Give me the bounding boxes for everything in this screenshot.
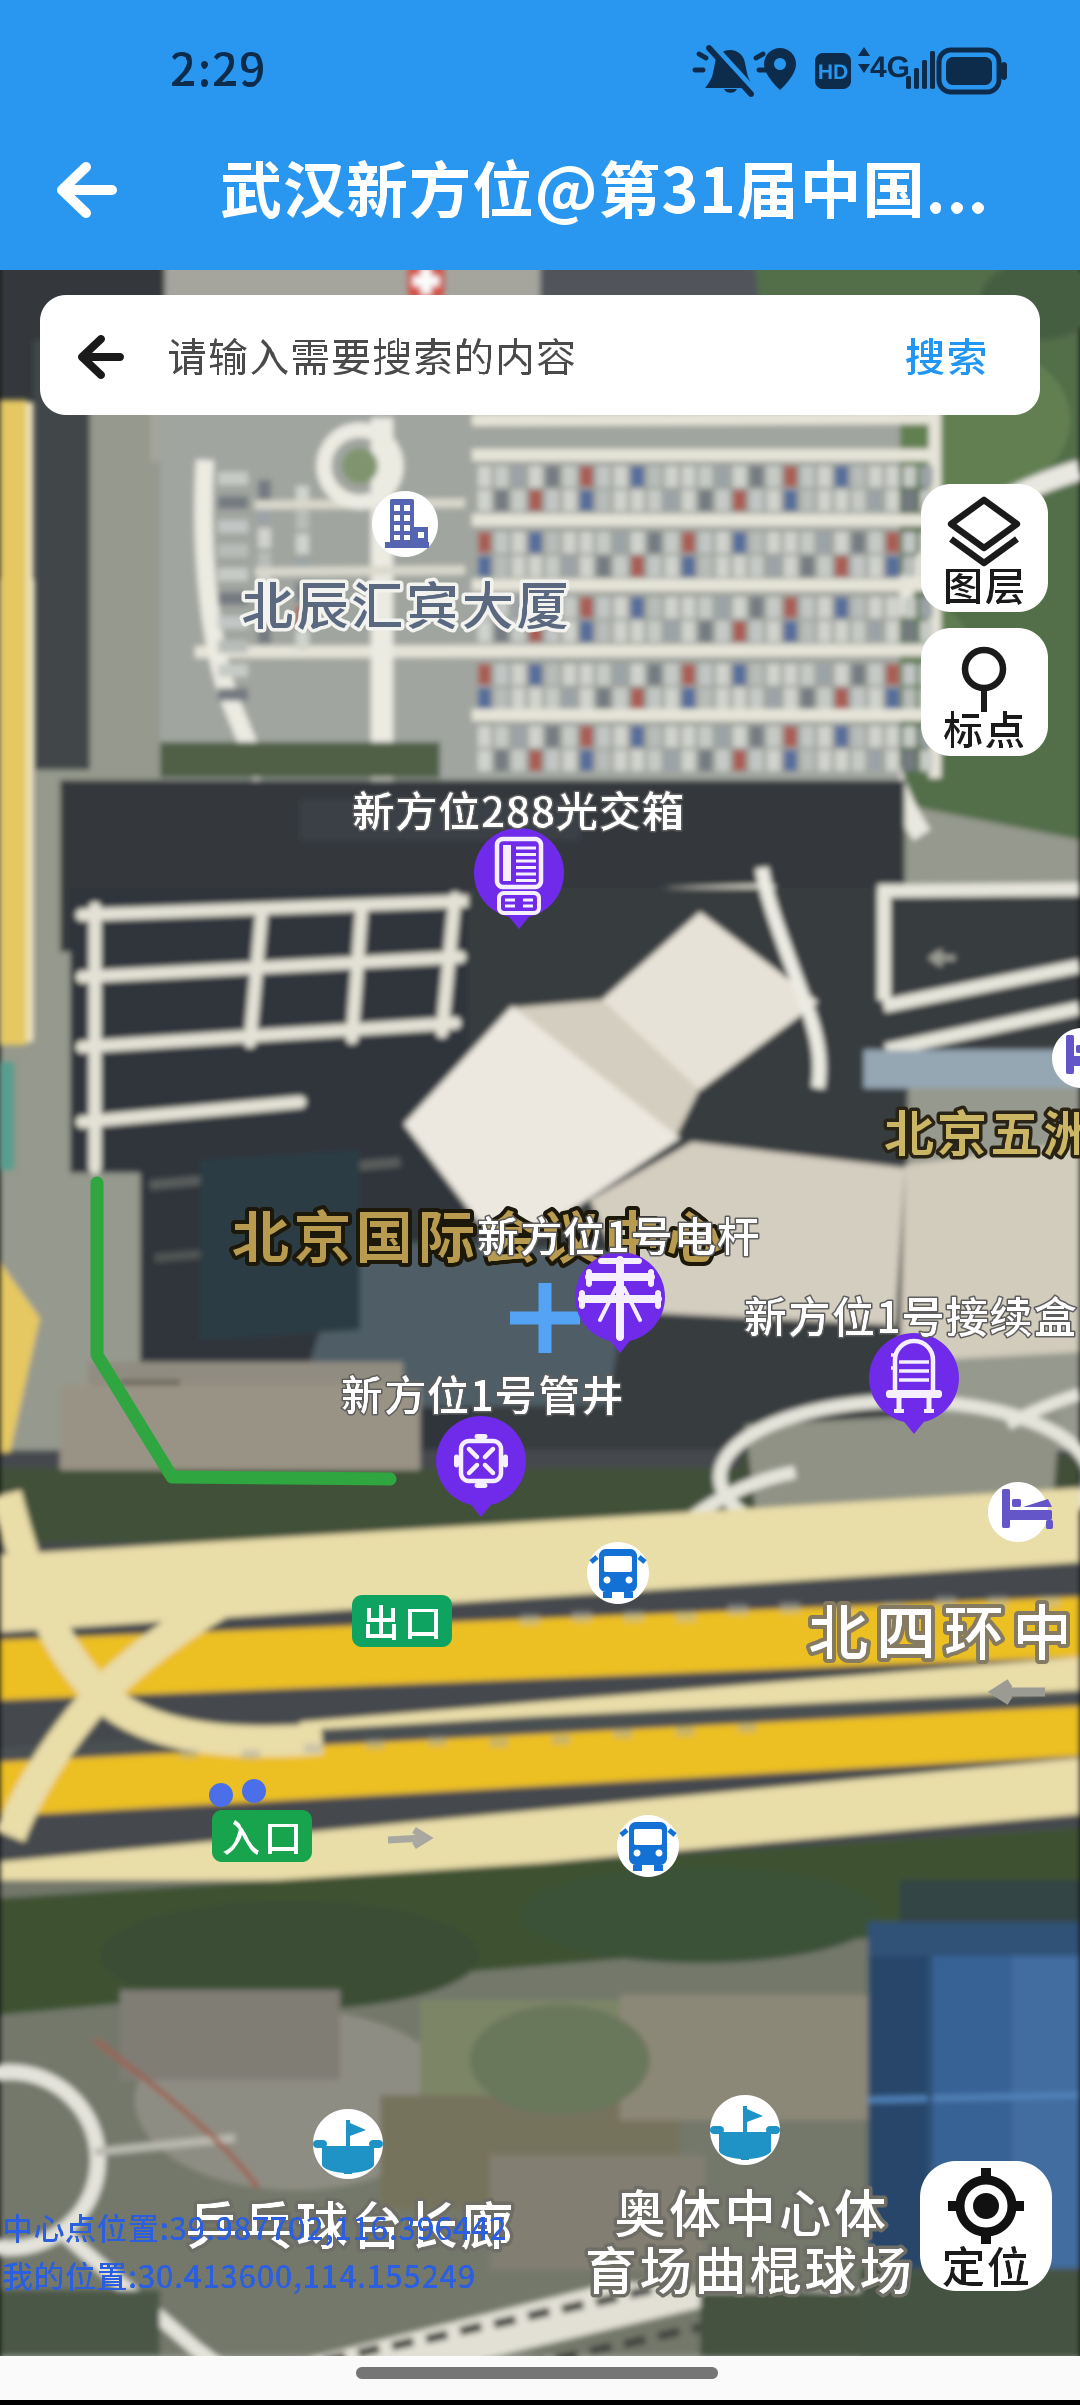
svg-text:HD: HD [818, 61, 848, 84]
svg-text:4G: 4G [870, 51, 910, 84]
